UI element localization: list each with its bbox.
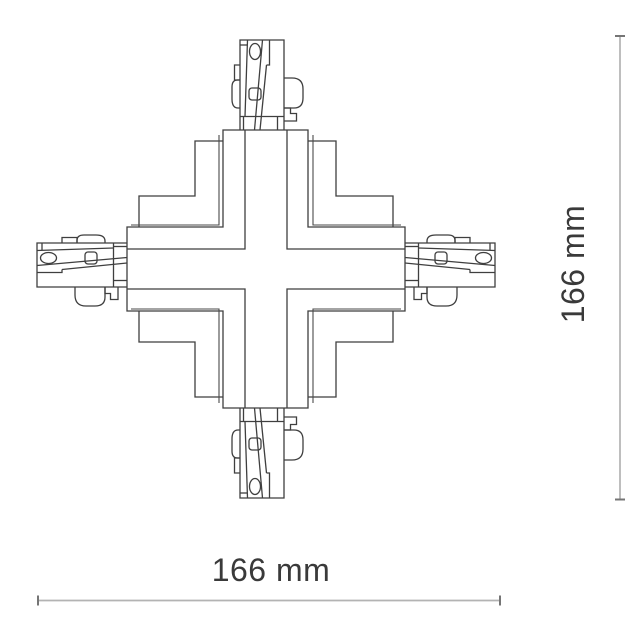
channel-corner-bottom-left [127,289,245,408]
connector-top [232,40,303,130]
connector-bottom [232,408,303,498]
channel-corner-top-right [287,130,405,249]
channel-corner-top-left [127,130,245,249]
inner-wall-mark-bottom-left [131,309,219,403]
inner-wall-mark-top-left [131,135,219,225]
step-outline-top-left [139,141,223,227]
step-outline-bottom-right [308,311,393,397]
height-dimension-label: 166 mm [555,205,591,324]
x-connector-technical-drawing: 166 mm 166 mm [0,0,642,642]
connectors [37,40,495,498]
step-outline-top-right [308,141,393,227]
height-dimension: 166 mm [555,36,625,500]
connector-left [37,235,127,306]
inner-wall-mark-top-right [313,135,401,225]
connector-right [405,235,495,306]
cross-body [127,130,405,408]
top-plate-plus-outline [127,130,405,408]
width-dimension: 166 mm [38,552,500,606]
technical-drawing-page: 166 mm 166 mm [0,0,642,642]
channel-corner-bottom-right [287,289,405,408]
width-dimension-label: 166 mm [212,552,331,588]
inner-wall-mark-bottom-right [313,309,401,403]
step-outline-bottom-left [139,311,223,397]
